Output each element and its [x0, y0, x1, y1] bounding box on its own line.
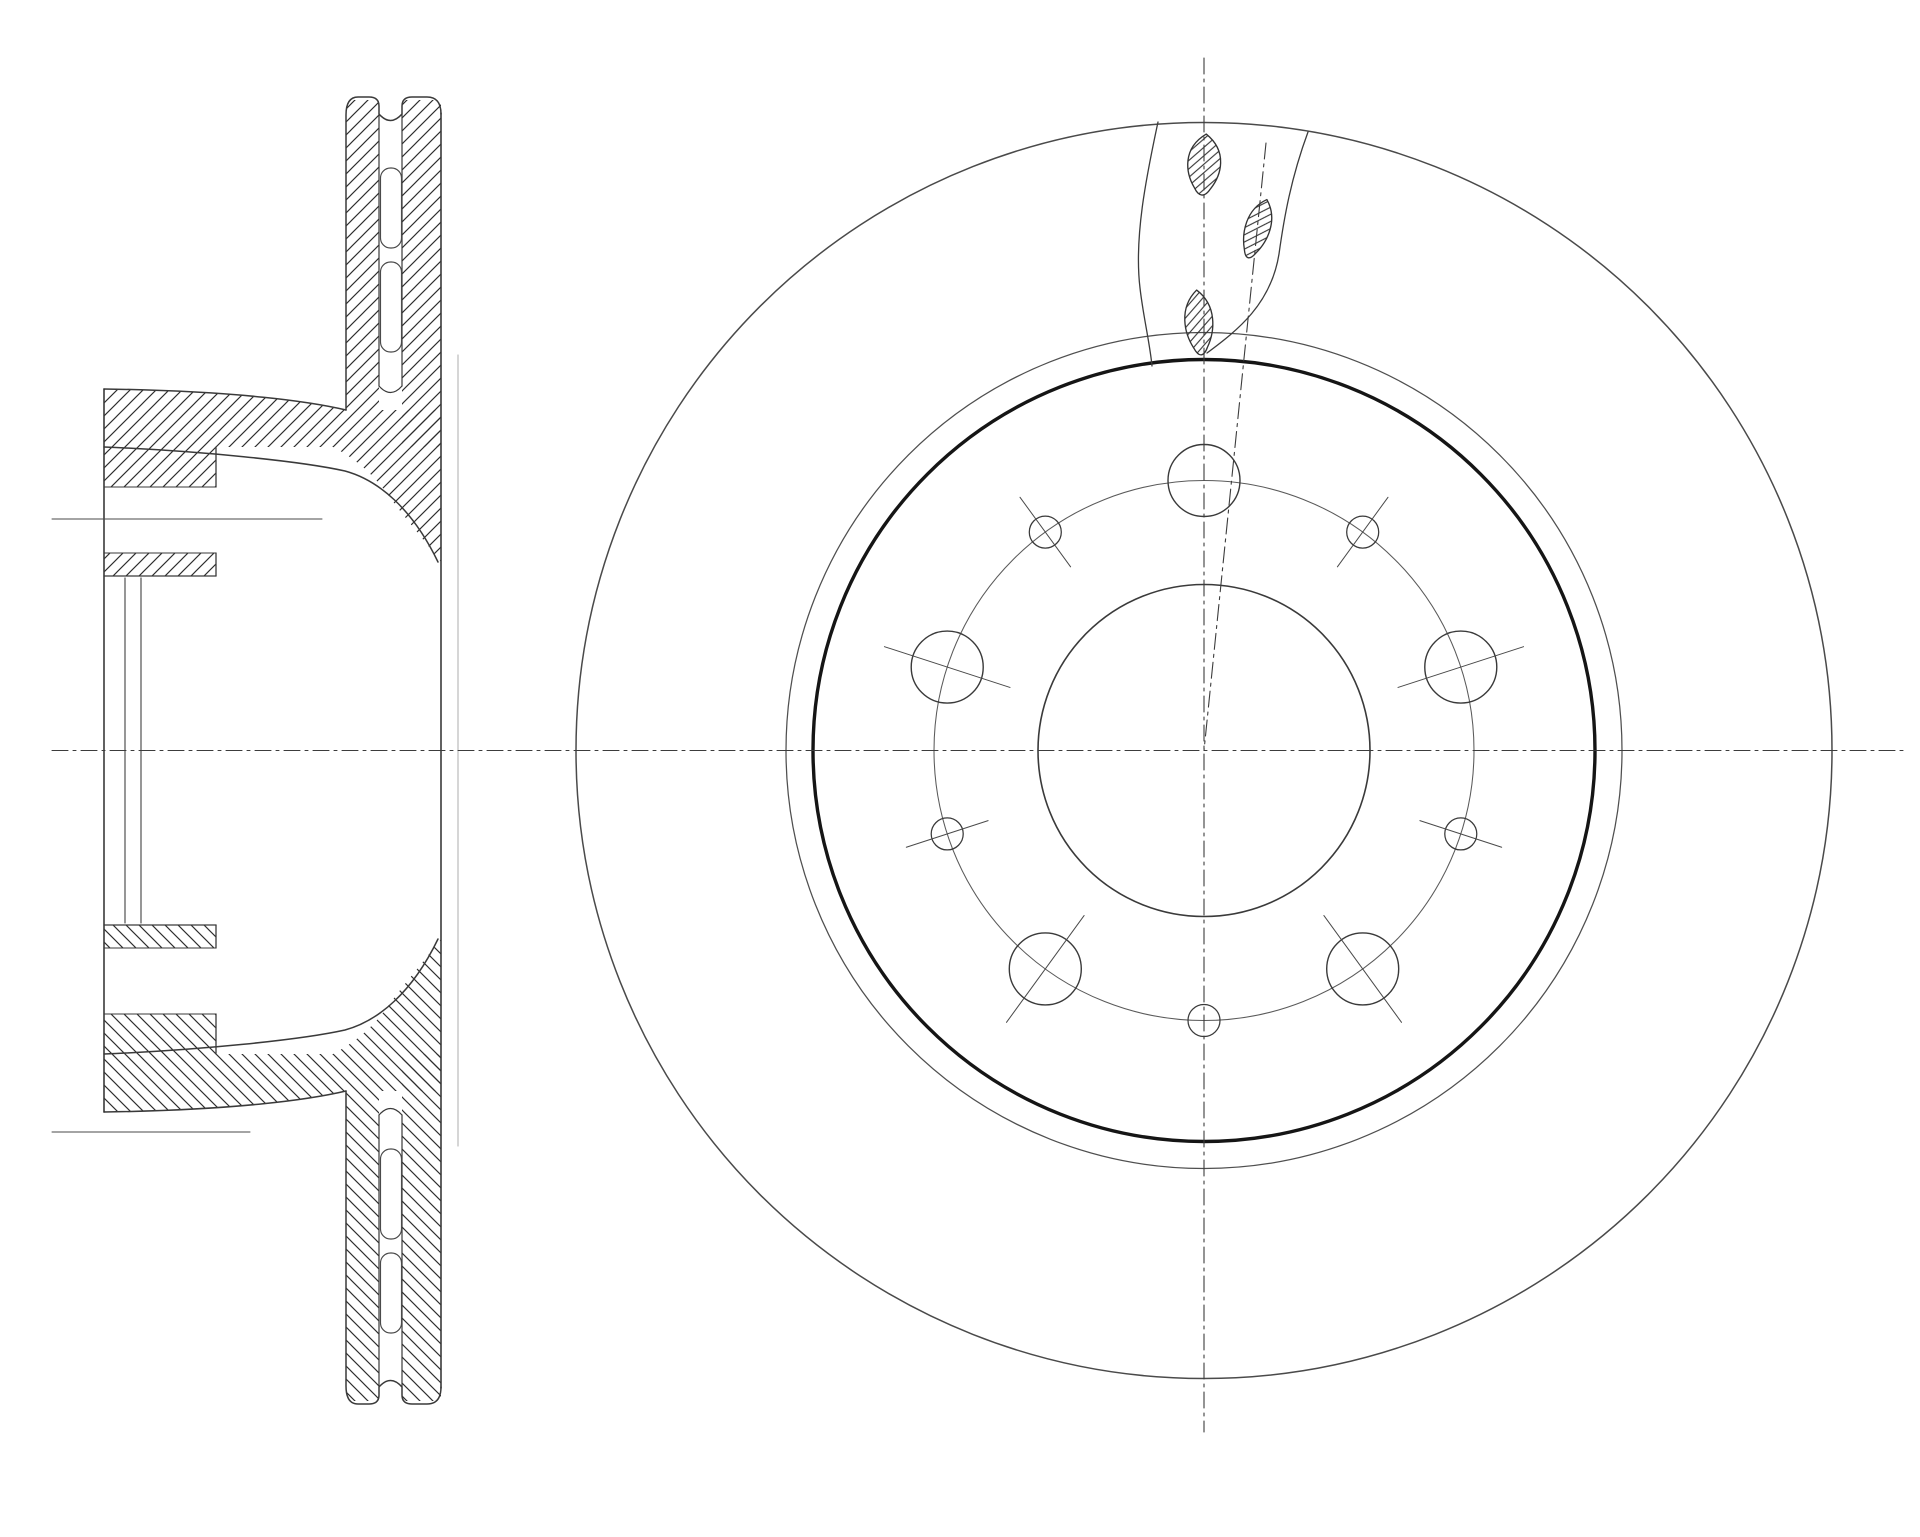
small-hole-centerline-tick — [1020, 497, 1071, 567]
vent-gap-bottom — [379, 386, 402, 393]
section-upper-half — [104, 97, 441, 576]
cooling-vane — [381, 1149, 402, 1239]
outboard-plate-hatch — [346, 1091, 379, 1401]
small-hole-centerline-tick — [1337, 497, 1388, 567]
outboard-plate-hatch — [346, 100, 379, 410]
flange-wall-hatch — [104, 925, 216, 948]
flange-wall-hatch — [104, 553, 216, 576]
vent-gap-bottom — [379, 1109, 402, 1116]
inboard-plate-hatch — [402, 100, 441, 447]
break-line-left — [1138, 122, 1158, 366]
section-lower-half — [104, 925, 441, 1404]
bolt-hole-centerline-tick — [1007, 916, 1085, 1023]
inboard-plate-hatch — [402, 1054, 441, 1401]
neck-hatch — [333, 447, 441, 562]
bolt-hole-centerline-tick — [884, 647, 1010, 688]
cooling-vane — [381, 262, 402, 352]
brake-disc-technical-drawing — [0, 0, 1920, 1537]
small-hole-centerline-tick — [906, 821, 988, 848]
neck-hatch — [333, 939, 441, 1054]
drawing-canvas — [0, 0, 1920, 1537]
centerlines — [52, 58, 1908, 1432]
small-hole-centerline-tick — [1420, 821, 1502, 848]
vent-slot-right — [1236, 196, 1278, 262]
rim-cutaway — [1138, 122, 1308, 366]
cooling-vane — [381, 168, 402, 248]
vent-slot-angle-centerline — [1204, 143, 1266, 751]
vent-slot-bottom — [1183, 289, 1215, 356]
cooling-vane — [381, 1253, 402, 1333]
bolt-hole-centerline-tick — [1324, 916, 1402, 1023]
bolt-hole-centerline-tick — [1398, 647, 1524, 688]
